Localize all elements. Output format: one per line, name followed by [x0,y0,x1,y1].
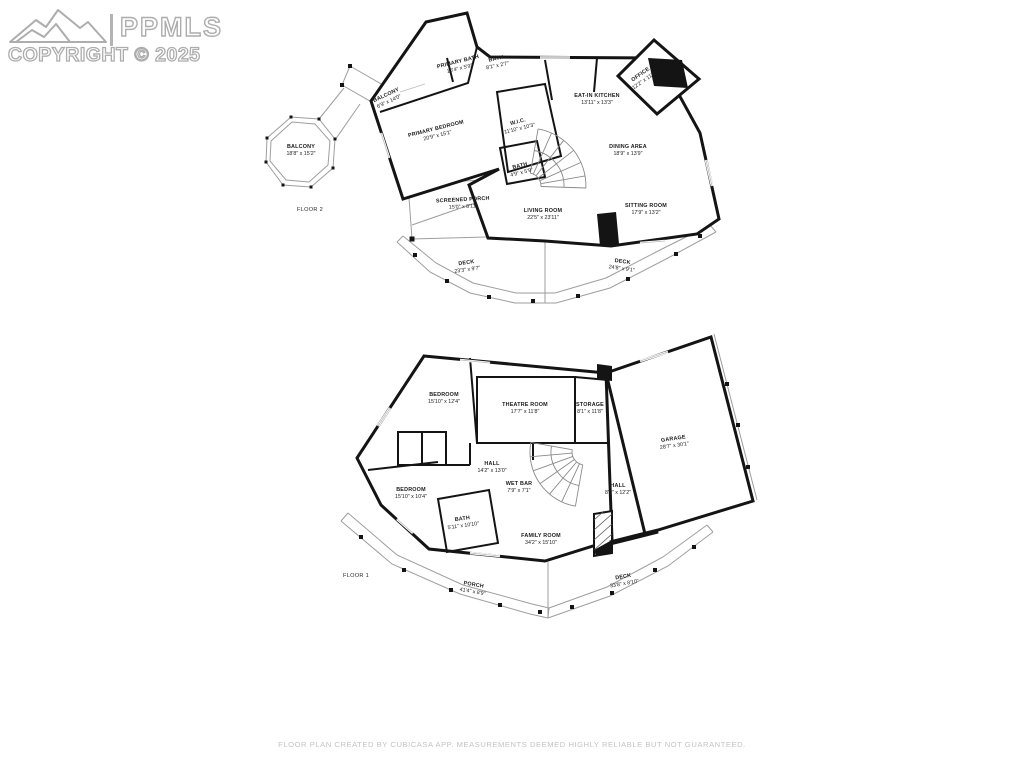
watermark-copyright: COPYRIGHT © 2025 [8,44,201,67]
floor2-exterior-walls [371,13,719,246]
floor2-fireplace-block [597,212,619,246]
floor1-garage-walls [606,337,753,534]
floor2-chimney-block [648,58,688,88]
watermark-brand: PPMLS [120,12,223,43]
floor2-plan [265,13,720,303]
mountain-logo-icon [6,4,108,44]
ppmls-watermark: PPMLS COPYRIGHT © 2025 [6,4,226,70]
floorplan-page: PPMLS COPYRIGHT © 2025 PRIMARY BATH10'4"… [0,0,1024,767]
disclaimer-text: FLOOR PLAN CREATED BY CUBICASA APP. MEAS… [0,740,1024,749]
floorplan-drawing [0,0,1024,767]
floor1-plan [341,334,757,618]
watermark-divider [110,14,113,46]
floor1-entry-block [597,364,612,381]
